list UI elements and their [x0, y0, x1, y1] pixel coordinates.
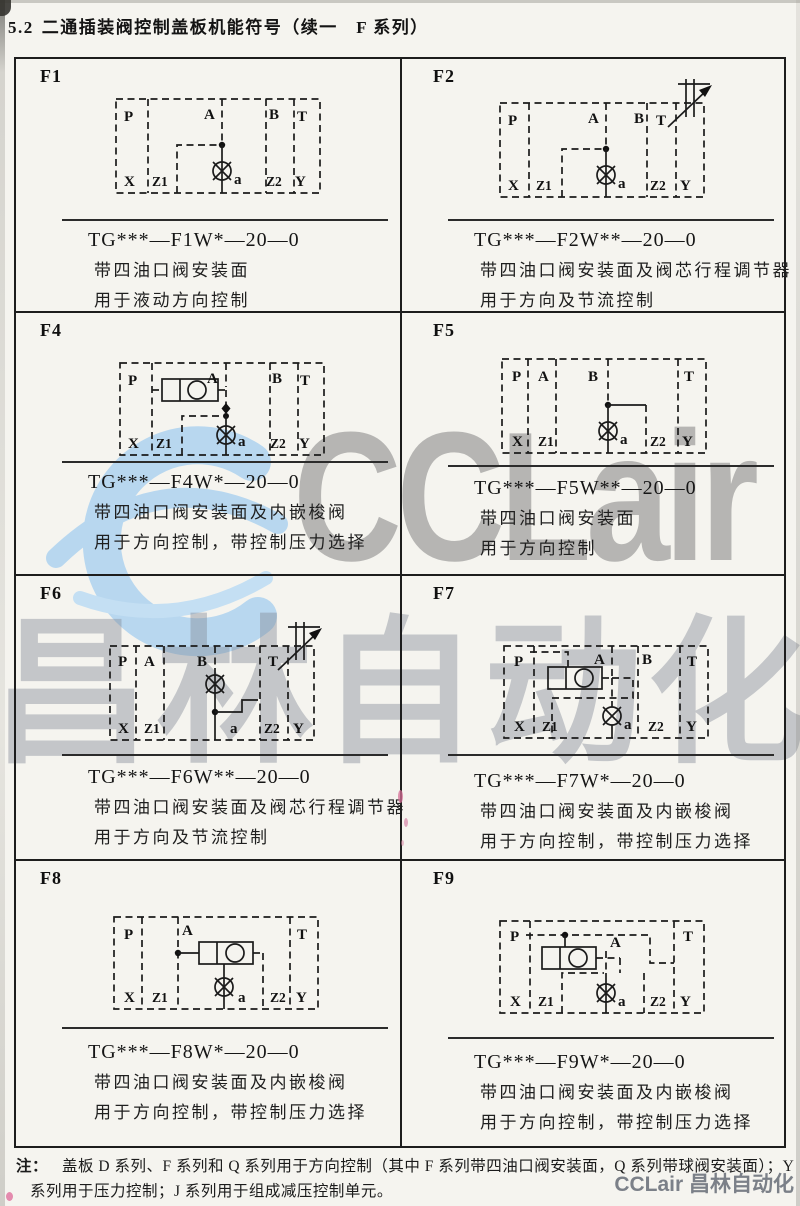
description-line: 带四油口阀安装面及阀芯行程调节器: [94, 793, 406, 818]
port-label-pilot-a: a: [234, 172, 242, 188]
cell-f5: F5 P A B T X Z1 a Z2 Y: [402, 313, 784, 576]
port-label-z1: Z1: [538, 434, 554, 449]
port-label-z2: Z2: [270, 990, 286, 1005]
model-code: TG***—F1W*—20—0: [88, 229, 300, 252]
port-label-x: X: [508, 178, 519, 194]
description-line: 用于方向及节流控制: [480, 286, 656, 311]
port-label-p: P: [128, 373, 137, 389]
port-label-y: Y: [680, 178, 691, 194]
port-label-x: X: [512, 434, 523, 450]
description-line: 用于液动方向控制: [94, 286, 250, 311]
description-line: 带四油口阀安装面: [480, 504, 636, 529]
ink-speck: [404, 818, 408, 827]
f1-schematic-diagram: P A B T X Z1 a Z2 Y: [102, 89, 332, 201]
model-code: TG***—F9W*—20—0: [474, 1051, 686, 1074]
port-label-t: T: [297, 927, 307, 943]
port-label-p: P: [124, 927, 133, 943]
port-label-z2: Z2: [270, 436, 286, 451]
port-label-x: X: [514, 719, 525, 735]
port-label-b: B: [269, 107, 279, 123]
cell-f1: F1 P A B T X Z1 a Z2 Y: [16, 59, 402, 313]
description-line: 带四油口阀安装面及内嵌梭阀: [94, 1068, 348, 1093]
port-label-a: A: [594, 652, 605, 668]
port-label-y: Y: [296, 990, 307, 1006]
port-label-y: Y: [680, 994, 691, 1010]
port-label-pilot-a: a: [238, 434, 246, 450]
port-label-a: A: [538, 369, 549, 385]
cell-id-label: F4: [40, 320, 62, 341]
throttle-valve-icon: [603, 707, 621, 725]
cell-id-label: F5: [433, 320, 455, 341]
port-label-a: A: [204, 107, 215, 123]
port-label-y: Y: [686, 719, 697, 735]
separator-rule: [448, 1037, 774, 1039]
ink-speck: [6, 1192, 13, 1201]
port-label-a: A: [207, 371, 218, 387]
port-label-z1: Z1: [536, 178, 552, 193]
port-label-t: T: [268, 654, 278, 670]
port-label-t: T: [297, 109, 307, 125]
port-label-z2: Z2: [264, 721, 280, 736]
port-label-b: B: [634, 111, 644, 127]
description-line: 带四油口阀安装面及内嵌梭阀: [480, 797, 734, 822]
port-label-pilot-a: a: [238, 990, 246, 1006]
port-label-x: X: [124, 174, 135, 190]
port-label-t: T: [687, 654, 697, 670]
port-label-pilot-a: a: [618, 994, 626, 1010]
port-label-z1: Z1: [542, 719, 558, 734]
port-label-t: T: [684, 369, 694, 385]
scan-edge-shadow-top: [0, 0, 800, 3]
f2-schematic-diagram: P A B T X Z1 a Z2 Y: [486, 77, 716, 207]
port-label-x: X: [124, 990, 135, 1006]
description-line: 用于方向控制: [480, 534, 597, 559]
model-code: TG***—F2W**—20—0: [474, 229, 697, 252]
ink-speck: [401, 840, 404, 846]
model-code: TG***—F7W*—20—0: [474, 770, 686, 793]
port-label-z2: Z2: [650, 178, 666, 193]
symbol-table: F1 P A B T X Z1 a Z2 Y: [14, 57, 786, 1148]
port-label-x: X: [118, 721, 129, 737]
footnote-label: 注：: [16, 1158, 48, 1175]
cell-id-label: F7: [433, 583, 455, 604]
description-line: 带四油口阀安装面及阀芯行程调节器: [480, 256, 792, 281]
arrow-diamond: [222, 403, 231, 414]
port-label-b: B: [272, 371, 282, 387]
f9-schematic-diagram: P A T X Z1 a Z2 Y: [486, 909, 716, 1021]
model-code: TG***—F4W*—20—0: [88, 471, 300, 494]
port-label-y: Y: [295, 174, 306, 190]
cell-id-label: F2: [433, 66, 455, 87]
page-title: 5.2二通插装阀控制盖板机能符号（续一 F 系列）: [8, 13, 429, 38]
cell-id-label: F6: [40, 583, 62, 604]
f6-schematic-diagram: P A B T X Z1 a Z2 Y: [96, 620, 326, 750]
port-label-pilot-a: a: [620, 432, 628, 448]
f4-schematic-diagram: P A B T X Z1 a Z2 Y: [106, 351, 336, 463]
port-label-z1: Z1: [538, 994, 554, 1009]
port-label-z1: Z1: [144, 721, 160, 736]
footnote-text: 盖板 D 系列、F 系列和 Q 系列用于方向控制（其中 F 系列带四油口阀安装面…: [30, 1158, 794, 1200]
model-code: TG***—F5W**—20—0: [474, 477, 697, 500]
port-label-b: B: [197, 654, 207, 670]
description-line: 用于方向控制，带控制压力选择: [94, 1098, 367, 1123]
shuttle-valve-icon: [548, 667, 602, 689]
cell-f7: F7 P A B T X: [402, 576, 784, 861]
port-label-p: P: [512, 369, 521, 385]
description-line: 用于方向控制，带控制压力选择: [480, 827, 753, 852]
f5-schematic-diagram: P A B T X Z1 a Z2 Y: [488, 349, 718, 461]
cell-id-label: F9: [433, 868, 455, 889]
f8-schematic-diagram: P A T X Z1 a Z2 Y: [100, 905, 330, 1017]
model-code: TG***—F6W**—20—0: [88, 766, 311, 789]
schematic-lines: [120, 363, 324, 455]
shuttle-valve-icon: [199, 942, 253, 964]
port-label-x: X: [128, 436, 139, 452]
port-label-z2: Z2: [650, 434, 666, 449]
separator-rule: [448, 465, 774, 467]
cell-f4: F4 P A B: [16, 313, 402, 576]
separator-rule: [62, 754, 388, 756]
port-label-a: A: [182, 923, 193, 939]
description-line: 用于方向及节流控制: [94, 823, 270, 848]
cell-f2: F2 P A B T: [402, 59, 784, 313]
port-label-pilot-a: a: [624, 717, 632, 733]
port-label-x: X: [510, 994, 521, 1010]
cell-f9: F9 P A T: [402, 861, 784, 1146]
ink-speck: [398, 790, 403, 803]
model-code: TG***—F8W*—20—0: [88, 1041, 300, 1064]
port-label-t: T: [300, 373, 310, 389]
port-label-z2: Z2: [648, 719, 664, 734]
port-label-y: Y: [293, 721, 304, 737]
description-line: 带四油口阀安装面及内嵌梭阀: [480, 1078, 734, 1103]
port-label-p: P: [510, 929, 519, 945]
description-line: 用于方向控制，带控制压力选择: [94, 528, 367, 553]
separator-rule: [448, 754, 774, 756]
scan-edge-shadow-left: [0, 0, 5, 1206]
separator-rule: [448, 219, 774, 221]
description-line: 带四油口阀安装面及内嵌梭阀: [94, 498, 348, 523]
separator-rule: [62, 461, 388, 463]
separator-rule: [62, 219, 388, 221]
port-label-t: T: [683, 929, 693, 945]
section-number: 5.2: [8, 18, 34, 37]
port-label-z1: Z1: [152, 174, 168, 189]
port-label-p: P: [514, 654, 523, 670]
port-label-z2: Z2: [266, 174, 282, 189]
port-label-a: A: [144, 654, 155, 670]
port-label-p: P: [124, 109, 133, 125]
port-label-z2: Z2: [650, 994, 666, 1009]
description-line: 用于方向控制，带控制压力选择: [480, 1108, 753, 1133]
separator-rule: [62, 1027, 388, 1029]
port-label-p: P: [508, 113, 517, 129]
port-label-p: P: [118, 654, 127, 670]
port-label-z1: Z1: [156, 436, 172, 451]
port-label-z1: Z1: [152, 990, 168, 1005]
scan-edge-shadow-right: [796, 0, 800, 1206]
port-label-b: B: [642, 652, 652, 668]
port-label-pilot-a: a: [618, 176, 626, 192]
cell-id-label: F8: [40, 868, 62, 889]
cell-id-label: F1: [40, 66, 62, 87]
cell-f8: F8 P A T X Z1 a: [16, 861, 402, 1146]
port-label-y: Y: [682, 434, 693, 450]
f7-schematic-diagram: P A B T X Z1 a Z2 Y: [490, 634, 720, 746]
schematic-lines: [504, 646, 708, 738]
port-label-pilot-a: a: [230, 721, 238, 737]
page-title-text: 二通插装阀控制盖板机能符号（续一 F 系列）: [42, 18, 429, 37]
shuttle-valve-icon: [542, 947, 596, 969]
port-label-t: T: [656, 113, 666, 129]
port-label-y: Y: [299, 436, 310, 452]
port-label-a: A: [588, 111, 599, 127]
port-label-a: A: [610, 935, 621, 951]
port-label-b: B: [588, 369, 598, 385]
schematic-lines: [500, 921, 704, 1013]
cell-f6: F6 P A B: [16, 576, 402, 861]
description-line: 带四油口阀安装面: [94, 256, 250, 281]
footnote: 注：盖板 D 系列、F 系列和 Q 系列用于方向控制（其中 F 系列带四油口阀安…: [8, 1154, 800, 1204]
